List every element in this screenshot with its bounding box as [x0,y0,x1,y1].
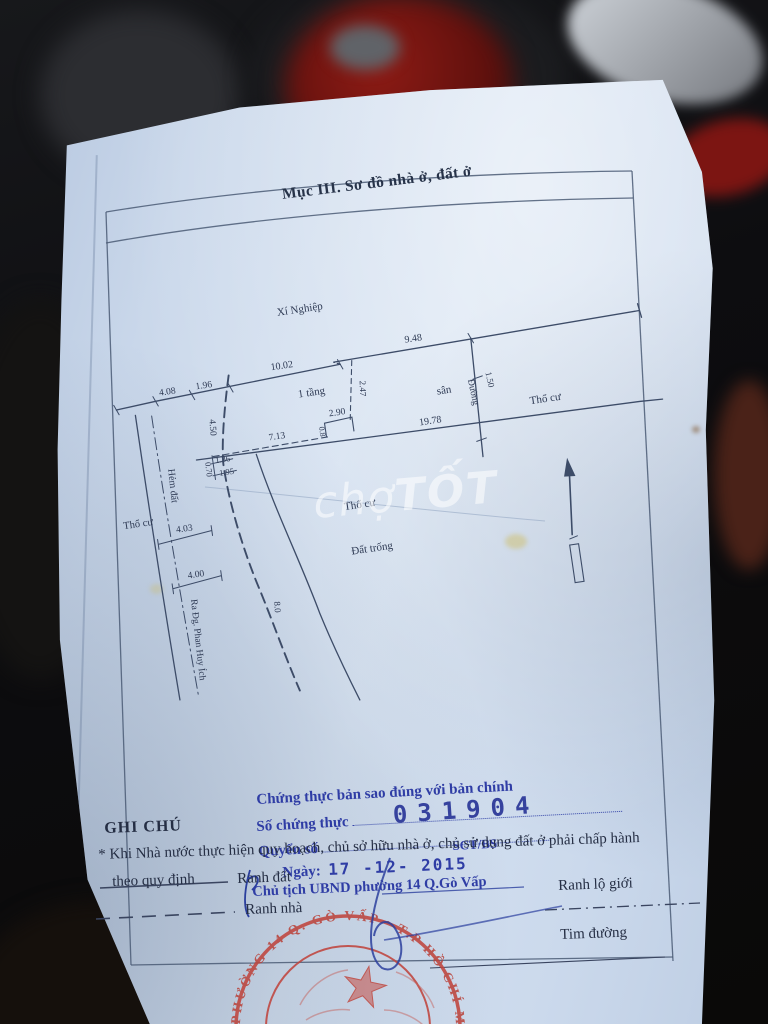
dim-2-90: 2.90 [328,407,346,419]
dim-1-95: 1.95 [218,466,234,478]
label-factory: Xí Nghiệp [276,300,324,319]
label-yard: sân [436,383,453,397]
photo-scene: Xí Nghiệp 1 tầng sân Đường Thổ cư Thổ cư… [0,0,768,1024]
dim-4-00: 4.00 [187,569,205,581]
label-to-street: Ra Đg. Phan Huy Ích [188,599,209,682]
dim-9-48: 9.48 [404,332,423,345]
dim-10-02: 10.02 [270,359,294,373]
legend-label-house: Ranh nhà [245,900,303,919]
dim-4-50: 4.50 [206,419,217,437]
house-notch [324,417,354,437]
legend-line-corridor [545,903,700,910]
certification-number-label: Số chứng thực [256,814,349,835]
dim-2-47: 2.47 [358,380,369,397]
dim-1-36: 1.36 [215,453,231,465]
dim-19-78: 19.78 [418,414,442,428]
dim-0-8: 0.8 [317,426,327,437]
dim-0-70: 0.70 [203,461,215,477]
legend-line-house [96,912,235,919]
label-residential-right: Thổ cư [529,391,563,408]
label-one-floor: 1 tầng [297,385,326,401]
dim-8-0: 8.0 [272,601,283,613]
alley-centerline [152,415,199,698]
land-boundary-bottom [196,392,662,467]
land-boundary-top-rear [333,311,640,363]
legend-label-centerline: Tim đường [560,925,627,944]
label-dirt-alley: Hẻm đất [165,468,180,503]
label-empty-land: Đất trống [351,540,395,558]
house-boundary-dashed [211,372,300,697]
legend-label-land: Ranh đất [237,869,291,888]
watermark-cho: chợ [311,471,397,529]
watermark-tot: TỐT [393,462,500,522]
label-road: Đường [465,378,480,406]
dim-1-50: 1.50 [483,371,496,389]
note-line2: theo quy định [112,871,195,891]
north-arrow-icon [557,459,590,583]
legend-label-corridor: Ranh lộ giới [558,875,633,895]
notes-heading: GHI CHÚ [104,817,182,838]
dim-4-08: 4.08 [158,386,176,398]
dim-7-13: 7.13 [268,431,286,443]
signature-flourish [384,906,562,940]
label-residential-left: Thổ cư [123,517,154,532]
alley-line-left [135,415,180,700]
dim-4-03: 4.03 [175,523,193,535]
